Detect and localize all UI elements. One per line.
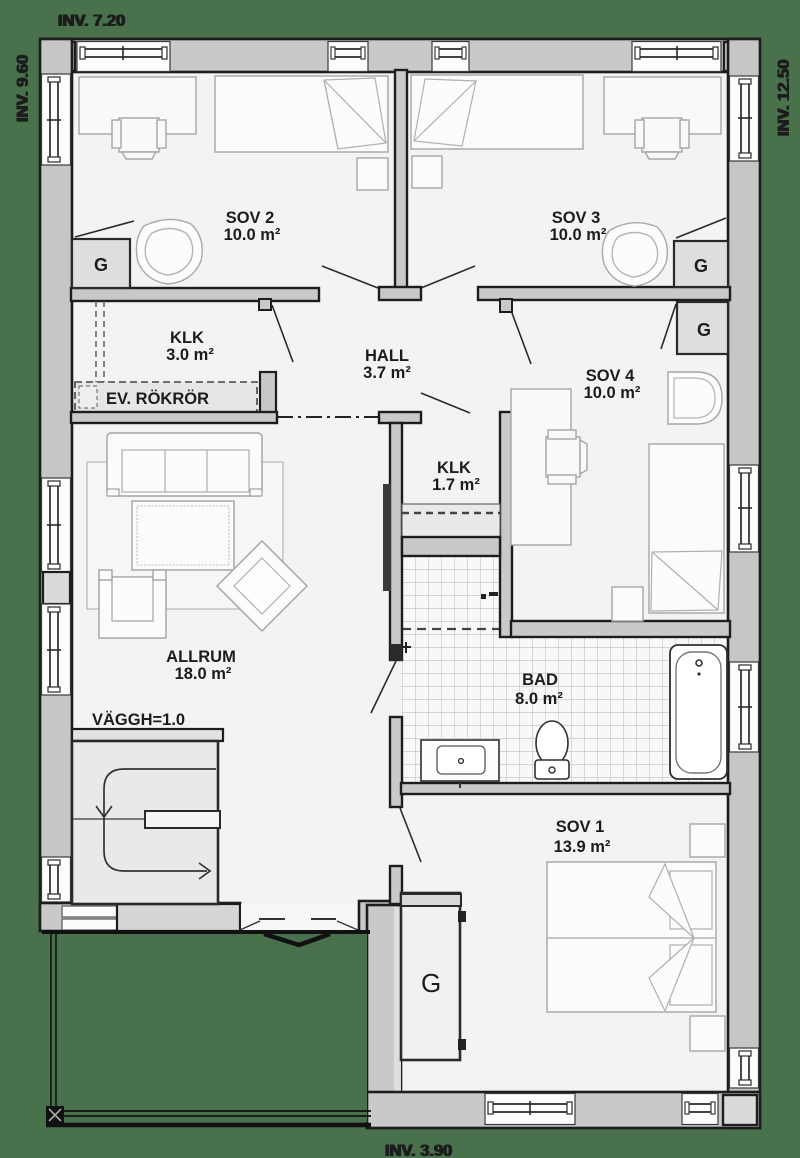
svg-text:10.0 m²: 10.0 m² [550, 226, 607, 244]
svg-text:10.0 m²: 10.0 m² [584, 384, 641, 402]
svg-text:EV. RÖKRÖR: EV. RÖKRÖR [106, 389, 209, 408]
svg-text:VÄGGH=1.0: VÄGGH=1.0 [92, 711, 185, 729]
svg-text:BAD: BAD [522, 671, 558, 689]
svg-text:8.0 m²: 8.0 m² [515, 690, 563, 708]
svg-text:1.7 m²: 1.7 m² [432, 476, 480, 494]
svg-text:SOV 3: SOV 3 [552, 209, 601, 227]
svg-text:3.0 m²: 3.0 m² [166, 346, 214, 364]
svg-text:13.9 m²: 13.9 m² [554, 838, 611, 856]
svg-text:G: G [421, 968, 441, 998]
svg-text:ALLRUM: ALLRUM [166, 648, 236, 666]
svg-text:INV. 3.90: INV. 3.90 [385, 1142, 452, 1158]
svg-text:SOV 4: SOV 4 [586, 367, 635, 385]
svg-text:3.7 m²: 3.7 m² [363, 364, 411, 382]
svg-text:HALL: HALL [365, 347, 409, 365]
svg-text:INV. 9.60: INV. 9.60 [14, 55, 32, 122]
svg-text:SOV 2: SOV 2 [226, 209, 275, 227]
svg-text:10.0 m²: 10.0 m² [224, 226, 281, 244]
svg-text:SOV 1: SOV 1 [556, 818, 605, 836]
svg-text:G: G [694, 256, 708, 276]
svg-text:KLK: KLK [170, 329, 204, 347]
svg-text:INV. 12.50: INV. 12.50 [775, 60, 793, 136]
svg-text:18.0 m²: 18.0 m² [175, 665, 232, 683]
svg-text:INV. 7.20: INV. 7.20 [58, 12, 125, 30]
svg-text:KLK: KLK [437, 459, 471, 477]
svg-text:G: G [94, 255, 108, 275]
svg-text:G: G [697, 320, 711, 340]
